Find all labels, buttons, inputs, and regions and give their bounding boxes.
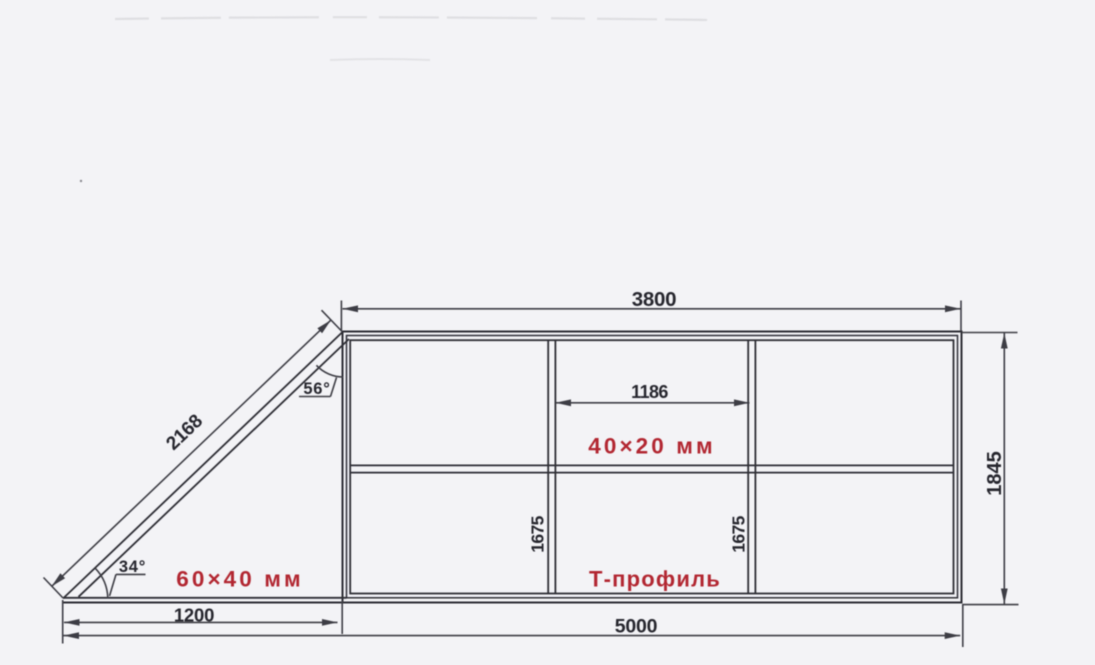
svg-text:Т-профиль: Т-профиль	[589, 567, 721, 592]
svg-text:1675: 1675	[528, 515, 548, 552]
svg-text:1675: 1675	[729, 515, 749, 552]
svg-text:60×40 мм: 60×40 мм	[176, 567, 304, 592]
svg-text:3800: 3800	[632, 288, 676, 311]
svg-text:40×20 мм: 40×20 мм	[588, 434, 716, 459]
svg-text:56°: 56°	[303, 380, 330, 398]
svg-text:5000: 5000	[615, 616, 658, 638]
svg-text:1200: 1200	[174, 605, 214, 626]
svg-text:1186: 1186	[631, 382, 668, 402]
svg-text:1845: 1845	[984, 451, 1006, 496]
svg-text:34°: 34°	[119, 558, 146, 576]
